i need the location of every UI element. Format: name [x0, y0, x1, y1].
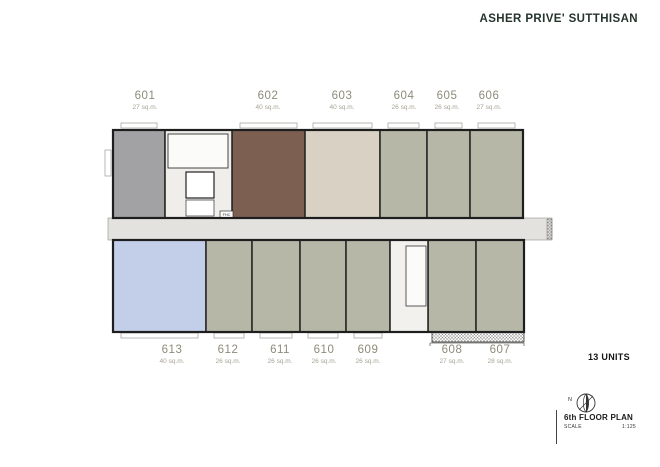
- unit-612: [206, 240, 252, 332]
- scale-label: SCALE: [564, 424, 582, 430]
- unit-605: [427, 130, 470, 218]
- unit-area: 40 sq.m.: [140, 358, 204, 365]
- unit-label-609: 60926 sq.m.: [336, 344, 400, 366]
- unit-label-606: 60627 sq.m.: [457, 90, 521, 112]
- north-label: N: [568, 397, 572, 403]
- unit-601: [113, 130, 165, 218]
- unit-608: [428, 240, 476, 332]
- unit-label-613: 61340 sq.m.: [140, 344, 204, 366]
- unit-label-602: 60240 sq.m.: [236, 90, 300, 112]
- unit-label-603: 60340 sq.m.: [310, 90, 374, 112]
- unit-number: 613: [140, 344, 204, 357]
- unit-611: [252, 240, 300, 332]
- page: ASHER PRIVE' SUTTHISAN FHC 60127 sq.m.60…: [0, 0, 660, 467]
- unit-number: 606: [457, 90, 521, 103]
- project-title: ASHER PRIVE' SUTTHISAN: [480, 13, 639, 25]
- unit-603: [305, 130, 380, 218]
- unit-604: [380, 130, 427, 218]
- floor-plan: FHC 60127 sq.m.60240 sq.m.60340 sq.m.604…: [100, 120, 556, 346]
- unit-602: [232, 130, 305, 218]
- units-count: 13 UNITS: [588, 352, 630, 362]
- unit-area: 26 sq.m.: [336, 358, 400, 365]
- scale-value: 1:125: [622, 424, 636, 430]
- unit-number: 602: [236, 90, 300, 103]
- unit-label-601: 60127 sq.m.: [113, 90, 177, 112]
- unit-area: 28 sq.m.: [468, 358, 532, 365]
- unit-606: [470, 130, 523, 218]
- plan-name: 6th FLOOR PLAN: [564, 413, 650, 422]
- unit-number: 607: [468, 344, 532, 357]
- unit-607: [476, 240, 524, 332]
- unit-area: 27 sq.m.: [457, 104, 521, 111]
- floor-plan-drawing: FHC: [100, 120, 556, 346]
- unit-area: 40 sq.m.: [310, 104, 374, 111]
- unit-area: 40 sq.m.: [236, 104, 300, 111]
- unit-number: 603: [310, 90, 374, 103]
- unit-609: [346, 240, 390, 332]
- fhc-label: FHC: [223, 213, 231, 217]
- unit-number: 609: [336, 344, 400, 357]
- titleblock: 6th FLOOR PLAN SCALE 1:125: [556, 410, 650, 444]
- unit-area: 27 sq.m.: [113, 104, 177, 111]
- unit-number: 601: [113, 90, 177, 103]
- unit-label-607: 60728 sq.m.: [468, 344, 532, 366]
- unit-613: [113, 240, 206, 332]
- unit-610: [300, 240, 346, 332]
